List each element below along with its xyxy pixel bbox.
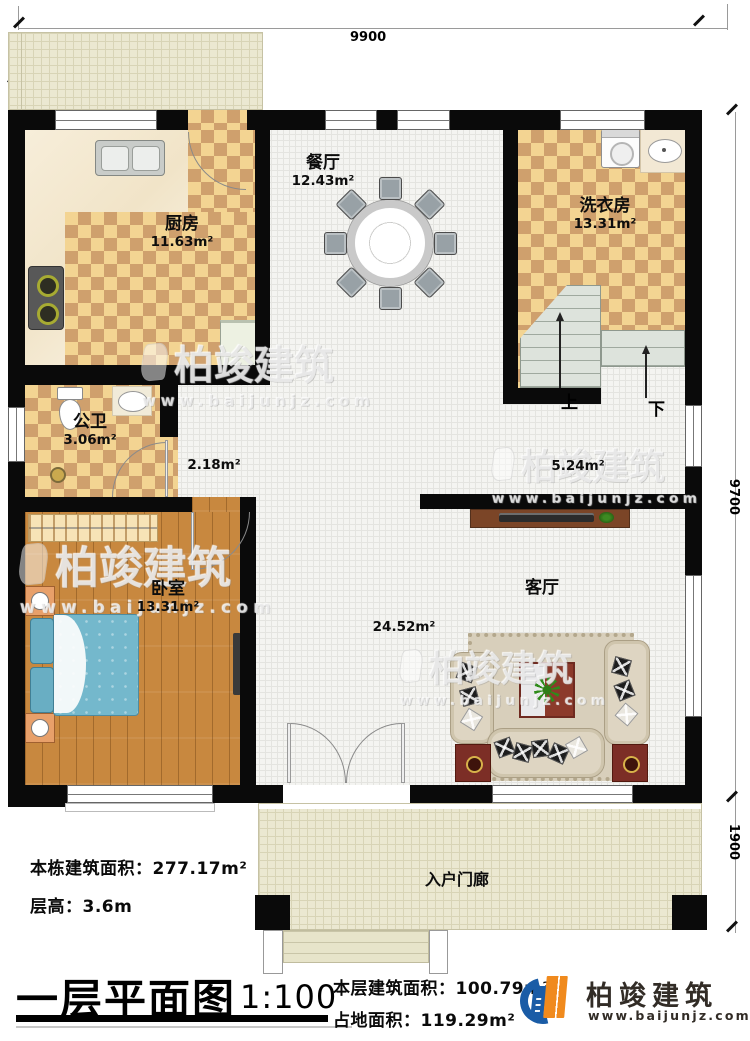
wall <box>8 110 25 407</box>
room-name: 卧室 <box>137 580 200 600</box>
room-name: 客厅 <box>525 579 559 599</box>
dim-top-line <box>18 28 727 29</box>
dim-right-line <box>735 112 736 803</box>
terrace <box>8 32 263 110</box>
window <box>492 785 633 803</box>
wall <box>247 110 325 130</box>
room-area: 11.63m² <box>151 235 214 251</box>
tv <box>499 513 594 522</box>
porch-column <box>672 895 707 930</box>
dim-right-value: 9700 <box>726 467 741 527</box>
bed-pillow <box>30 667 54 713</box>
label-bathroom: 公卫 3.06m² <box>63 413 116 448</box>
kitchen-door-opening <box>188 110 247 130</box>
stairs-down-arrow <box>645 353 647 398</box>
floor-drain <box>50 467 66 483</box>
wall-kitchen-bottom <box>8 365 270 385</box>
bedroom-door-floor <box>192 497 240 512</box>
sink-basin <box>132 146 160 171</box>
dining-chair <box>324 232 347 255</box>
bed <box>53 614 139 716</box>
room-name: 入户门廊 <box>425 871 489 889</box>
label-stairs-up: 上 <box>561 388 578 413</box>
brand-url: www.baijunjz.com <box>588 1008 750 1023</box>
scale-label: 1:100 <box>240 978 337 1016</box>
dim-tick <box>13 16 25 28</box>
tv-cabinet <box>470 509 630 528</box>
burner <box>37 275 59 297</box>
room-area: 3.06m² <box>63 433 116 449</box>
label-bedroom: 卧室 13.31m² <box>137 580 200 615</box>
brand-logo: 柏竣建筑 www.baijunjz.com <box>518 966 748 1036</box>
sink-basin <box>101 146 129 171</box>
washer-drum <box>610 142 634 166</box>
floor-plan-sheet: 9900 9700 1900 <box>0 0 750 1041</box>
dim-ext-line <box>727 4 728 30</box>
label-living: 客厅 <box>525 579 559 599</box>
dim-tick <box>726 790 738 802</box>
label-laundry: 洗衣房 13.31m² <box>574 197 637 232</box>
label-kitchen: 厨房 11.63m² <box>151 215 214 250</box>
wall <box>685 467 702 575</box>
bathroom-door-leaf <box>165 440 168 497</box>
bed-sheet <box>54 615 86 713</box>
dining-chair <box>379 177 402 200</box>
wall <box>8 785 67 807</box>
fridge <box>220 320 257 369</box>
dining-chair <box>434 232 457 255</box>
lamp <box>31 592 49 610</box>
stairs-up-arrow <box>559 320 561 390</box>
stairs-down-arrowhead <box>642 345 650 354</box>
window <box>8 407 25 462</box>
footprint-area: 占地面积：119.29m² <box>333 1006 515 1031</box>
wall <box>685 110 702 405</box>
label-porch: 入户门廊 <box>425 871 489 889</box>
title-underline-thin <box>16 1026 352 1028</box>
porch-step-column <box>429 930 448 974</box>
dining-table <box>347 200 433 286</box>
wall-kitchen-right <box>255 130 270 385</box>
side-table <box>455 744 491 782</box>
washer-panel <box>602 130 639 138</box>
wall-bath-right <box>160 385 178 437</box>
entry-porch <box>258 803 702 930</box>
bathroom-sink-counter <box>112 386 152 416</box>
burner <box>37 303 59 325</box>
brand-logo-icon <box>518 970 580 1030</box>
room-name: 洗衣房 <box>574 197 637 217</box>
room-name: 公卫 <box>63 413 116 433</box>
wall-dining-laundry <box>503 110 518 393</box>
room-name: 餐厅 <box>292 154 355 174</box>
dim-tick <box>726 920 738 932</box>
logo-building-orange <box>543 976 568 1018</box>
coffee-table <box>519 662 575 718</box>
wall-tv <box>420 494 687 509</box>
room-name: 厨房 <box>151 215 214 235</box>
entry-door-leaf <box>401 723 405 783</box>
entry-door-leaf <box>287 723 291 783</box>
porch-column <box>255 895 290 930</box>
floor-height: 层高：3.6m <box>30 892 132 917</box>
wardrobe <box>28 514 158 542</box>
lamp <box>31 719 49 737</box>
nightstand <box>25 713 55 743</box>
terrace-joint-line <box>21 32 22 110</box>
room-area: 13.31m² <box>137 600 200 616</box>
porch-step-column <box>263 930 283 974</box>
window <box>55 110 157 130</box>
room-area: 12.43m² <box>292 174 355 190</box>
dim-porch-value: 1900 <box>726 812 741 872</box>
window-sill <box>65 803 215 812</box>
bathroom-sink <box>118 391 148 412</box>
washing-machine <box>601 129 640 168</box>
side-table-knob <box>623 756 640 773</box>
room-area: 13.31m² <box>574 217 637 233</box>
wall <box>377 110 397 130</box>
bed-pillow <box>30 618 54 664</box>
laundry-sink-drain <box>662 148 666 152</box>
kitchen-sink <box>95 140 165 176</box>
dining-chair <box>379 287 402 310</box>
window <box>67 785 213 803</box>
window <box>397 110 450 130</box>
cabinet-plant <box>599 512 614 523</box>
stairs-up-arrowhead <box>556 312 564 321</box>
nightstand <box>25 586 55 616</box>
dim-tick <box>693 14 705 26</box>
dim-tick <box>726 103 738 115</box>
laundry-sink-counter <box>640 129 688 173</box>
stove <box>28 266 64 330</box>
window <box>325 110 377 130</box>
window <box>560 110 645 130</box>
wall-bedroom-top <box>8 497 192 512</box>
dim-top-value: 9900 <box>350 30 386 45</box>
porch-steps <box>283 930 429 963</box>
wall-stair <box>503 388 601 404</box>
side-table <box>612 744 648 782</box>
total-building-area: 本栋建筑面积：277.17m² <box>30 854 247 879</box>
label-dining: 餐厅 12.43m² <box>292 154 355 189</box>
label-stairs-down: 下 <box>648 395 665 420</box>
label-hall-west-area: 2.18m² <box>187 457 240 473</box>
label-living-area: 24.52m² <box>373 619 436 635</box>
label-hall-stair-area: 5.24m² <box>551 458 604 474</box>
window <box>685 405 702 467</box>
dim-ext-line <box>18 6 19 30</box>
side-table-knob <box>466 756 483 773</box>
wall <box>410 785 492 803</box>
wall <box>157 110 188 130</box>
table-plant <box>534 677 560 703</box>
bedroom-door-leaf <box>191 512 194 570</box>
wall <box>213 785 283 803</box>
window <box>685 575 702 717</box>
title-underline <box>16 1015 328 1022</box>
